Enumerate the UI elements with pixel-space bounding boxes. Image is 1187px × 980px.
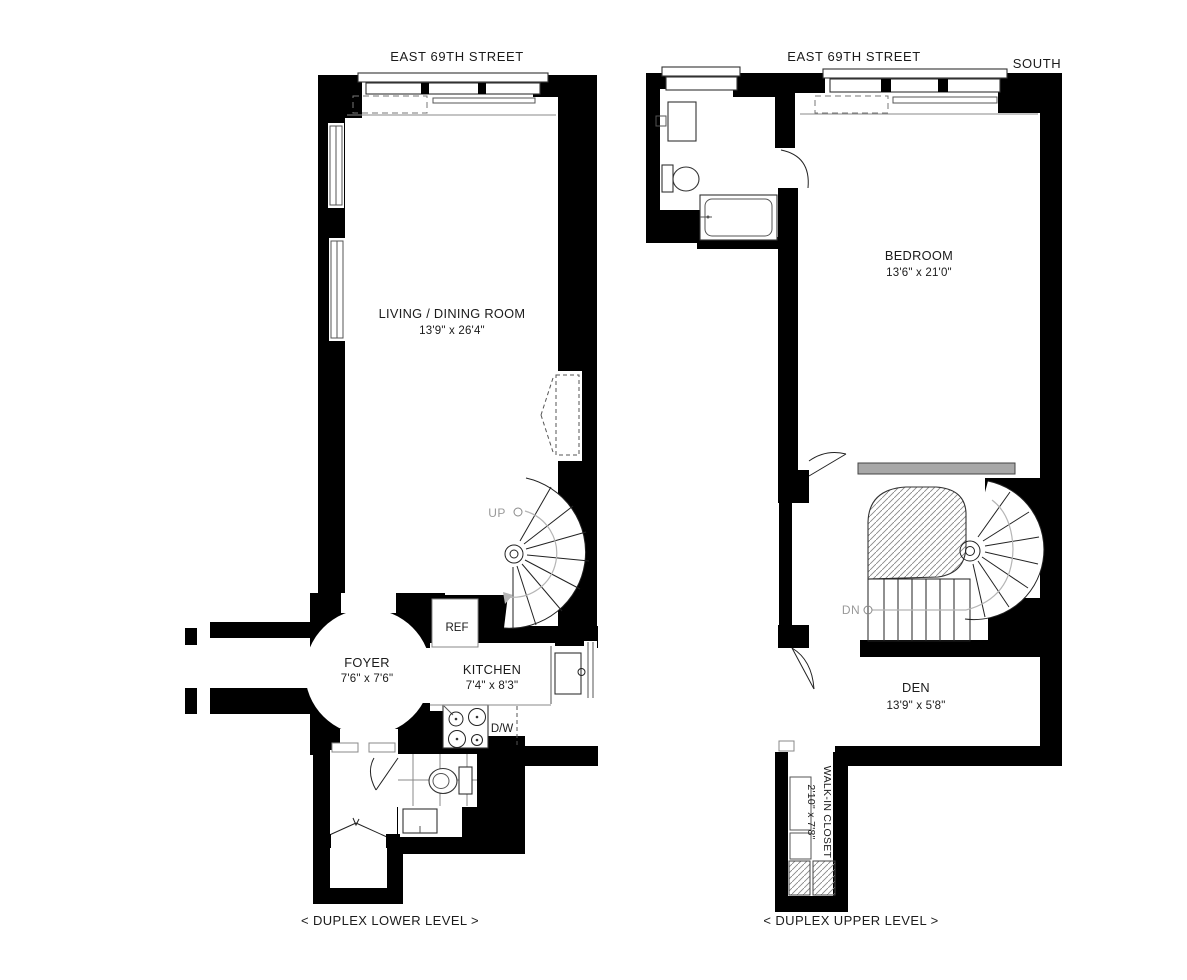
bedroom-label: BEDROOM [885,248,953,263]
kitchen-label: KITCHEN [463,662,521,677]
bathroom-door-arc [781,150,808,188]
compass-label: SOUTH [1013,56,1062,71]
bath-sink-icon [656,102,696,141]
living-room-label: LIVING / DINING ROOM [379,306,526,321]
bedroom-dims: 13'6" x 21'0" [886,267,952,279]
closet-drawers [813,861,835,895]
radiator-bar [858,463,1015,474]
kitchen-dims: 7'4" x 8'3" [466,680,518,692]
upper-level-plan: EAST 69TH STREET SOUTH BEDROOM 13'6" x 2… [646,49,1062,928]
bathtub-icon [700,195,777,240]
den-dims: 13'9" x 5'8" [886,700,945,712]
stair-landing-hatched [868,487,966,579]
radiator-upper [893,97,997,103]
foyer-label: FOYER [344,655,390,670]
den-door-top [809,453,846,476]
stairs-up-label: UP [488,506,505,520]
upper-level-caption: < DUPLEX UPPER LEVEL > [763,913,938,928]
stairs-down-label: DN [842,603,860,617]
closet-drawers [789,861,810,895]
toilet-icon [429,767,472,794]
floor-plan: EAST 69TH STREET LIVING / DINING ROOM 13… [0,0,1187,980]
stove-icon [443,705,488,748]
refrigerator-label: REF [446,622,469,634]
lower-level-caption: < DUPLEX LOWER LEVEL > [301,913,479,928]
den-label: DEN [902,680,930,695]
dishwasher-label: D/W [491,723,514,735]
radiator-dashed-upper [815,96,888,113]
powder-sink-icon [403,809,437,833]
upper-street-label: EAST 69TH STREET [787,49,921,64]
bay-window-lower [347,73,556,115]
foyer-floor [305,609,431,735]
radiator [433,98,535,103]
bath-toilet-icon [662,165,699,192]
lower-interiors [197,123,597,888]
den-door-bottom [792,648,814,689]
walk-in-closet-label: WALK-IN CLOSET [821,766,833,859]
radiator-dashed [353,96,427,113]
lower-street-label: EAST 69TH STREET [390,49,524,64]
walk-in-closet-dims: 2'10" x 7'8" [805,784,817,839]
foyer-dims: 7'6" x 7'6" [341,673,393,685]
lower-level-plan: EAST 69TH STREET LIVING / DINING ROOM 13… [185,49,598,928]
living-room-dims: 13'9" x 26'4" [419,325,485,337]
floor-plan-canvas: EAST 69TH STREET LIVING / DINING ROOM 13… [0,0,1187,980]
